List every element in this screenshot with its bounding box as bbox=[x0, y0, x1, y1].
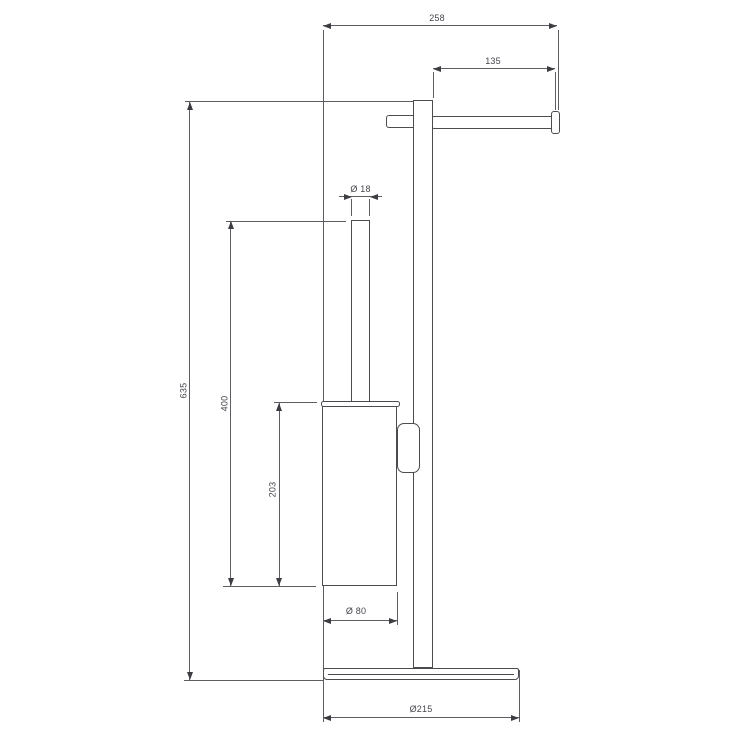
arrow-overall-width-left bbox=[323, 23, 331, 29]
paper-holder-arm bbox=[428, 116, 552, 129]
ext-line-paper-holder-left bbox=[433, 72, 434, 98]
ext-line-base-right bbox=[519, 670, 520, 722]
label-handle-diameter: Ø 18 bbox=[339, 184, 382, 195]
arrow-cup-height-bottom bbox=[276, 578, 282, 586]
brush-cup bbox=[322, 406, 397, 586]
dim-line-cup-height bbox=[279, 403, 280, 586]
ext-line-floor bbox=[184, 680, 323, 681]
spare-hook-stub bbox=[386, 115, 414, 128]
ext-line-paper-holder-right bbox=[555, 72, 556, 110]
arrow-cup-diameter-left bbox=[323, 618, 331, 624]
ext-line-handle-left bbox=[351, 199, 352, 216]
arrow-paper-holder-right bbox=[547, 66, 555, 72]
label-overall-height: 635 bbox=[178, 371, 189, 411]
arrow-overall-width-right bbox=[549, 23, 557, 29]
stand-pole bbox=[413, 100, 433, 668]
ext-line-cup-bottom bbox=[223, 586, 316, 587]
ext-line-handle-right bbox=[369, 199, 370, 216]
technical-drawing: 258 135 Ø 18 635 400 203 Ø 80 Ø215 bbox=[0, 0, 740, 740]
dim-line-cup-diameter bbox=[323, 620, 397, 621]
ext-line-handle-top bbox=[226, 221, 346, 222]
dim-line-overall-width bbox=[323, 25, 557, 26]
arrow-cup-diameter-right bbox=[389, 618, 397, 624]
label-cup-diameter: Ø 80 bbox=[330, 606, 382, 617]
ext-line-overall-width-right bbox=[558, 30, 559, 110]
mounting-bracket bbox=[397, 423, 421, 473]
arrow-paper-holder-left bbox=[433, 66, 441, 72]
arrow-base-diameter-left bbox=[323, 715, 331, 721]
label-brush-unit-height: 400 bbox=[219, 384, 230, 424]
arrow-cup-height-top bbox=[276, 403, 282, 411]
base-plate-rim-line bbox=[328, 674, 514, 675]
label-base-diameter: Ø215 bbox=[391, 704, 451, 715]
label-cup-height: 203 bbox=[267, 470, 278, 510]
arrow-base-diameter-right bbox=[511, 715, 519, 721]
arrow-overall-height-top bbox=[187, 102, 193, 110]
ext-line-pole-top bbox=[185, 101, 433, 102]
dim-line-paper-holder-length bbox=[433, 68, 555, 69]
arrow-brush-unit-top bbox=[228, 221, 234, 229]
brush-handle bbox=[351, 220, 370, 403]
arrow-overall-height-bottom bbox=[187, 672, 193, 680]
label-paper-holder-length: 135 bbox=[473, 56, 513, 67]
dim-line-base-diameter bbox=[323, 717, 519, 718]
label-overall-width: 258 bbox=[417, 13, 457, 24]
paper-holder-end-cap bbox=[551, 111, 561, 135]
arrow-brush-unit-bottom bbox=[228, 578, 234, 586]
